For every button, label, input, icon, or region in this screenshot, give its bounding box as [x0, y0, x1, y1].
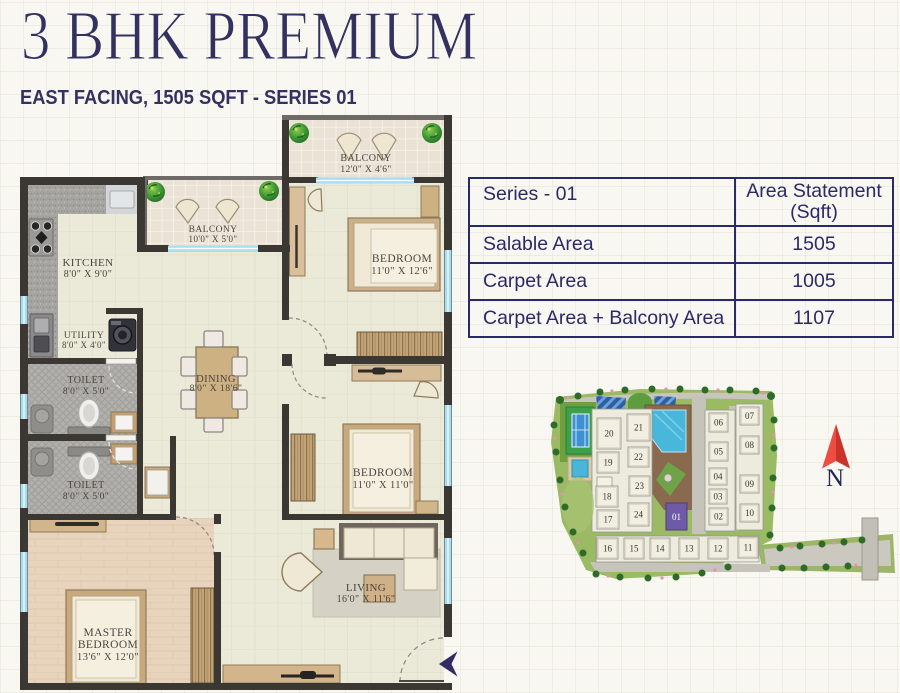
svg-text:21: 21 [634, 423, 643, 433]
svg-text:12'0" X 4'6": 12'0" X 4'6" [340, 165, 391, 175]
svg-text:N: N [826, 465, 844, 492]
svg-text:TOILET: TOILET [67, 375, 104, 386]
svg-text:16'0" X 11'6": 16'0" X 11'6" [337, 594, 396, 605]
svg-text:04: 04 [714, 472, 724, 482]
svg-text:16: 16 [603, 544, 613, 554]
svg-text:17: 17 [604, 515, 614, 525]
svg-text:06: 06 [714, 418, 724, 428]
svg-text:24: 24 [634, 510, 644, 520]
svg-text:10: 10 [745, 508, 755, 518]
svg-text:8'0" X 5'0": 8'0" X 5'0" [63, 492, 109, 502]
svg-text:8'0" X 9'0": 8'0" X 9'0" [64, 269, 112, 280]
svg-text:15: 15 [630, 544, 640, 554]
svg-text:KITCHEN: KITCHEN [62, 257, 113, 269]
svg-text:BEDROOM: BEDROOM [372, 253, 432, 265]
svg-text:02: 02 [714, 512, 723, 522]
svg-text:13'6" X 12'0": 13'6" X 12'0" [77, 652, 139, 663]
svg-text:08: 08 [745, 440, 755, 450]
svg-text:TOILET: TOILET [67, 480, 104, 491]
svg-text:LIVING: LIVING [346, 582, 386, 594]
svg-text:BEDROOM: BEDROOM [78, 639, 138, 651]
svg-text:BEDROOM: BEDROOM [353, 467, 413, 479]
svg-text:11'0" X 11'0": 11'0" X 11'0" [352, 480, 413, 491]
svg-text:13: 13 [685, 544, 695, 554]
svg-text:09: 09 [745, 479, 755, 489]
svg-text:11: 11 [744, 543, 753, 553]
svg-text:07: 07 [745, 411, 755, 421]
svg-text:14: 14 [656, 544, 666, 554]
svg-text:03: 03 [714, 492, 724, 502]
svg-text:12: 12 [714, 544, 723, 554]
svg-text:19: 19 [604, 458, 614, 468]
svg-text:BALCONY: BALCONY [340, 153, 391, 164]
svg-text:23: 23 [635, 481, 645, 491]
svg-text:8'0" X 18'6": 8'0" X 18'6" [190, 383, 243, 394]
svg-text:20: 20 [605, 429, 615, 439]
svg-text:10'0" X 5'0": 10'0" X 5'0" [189, 234, 238, 244]
svg-text:11'0" X 12'6": 11'0" X 12'6" [371, 266, 433, 277]
svg-text:22: 22 [634, 452, 643, 462]
svg-text:8'0" X 4'0": 8'0" X 4'0" [62, 340, 106, 350]
svg-text:MASTER: MASTER [83, 627, 132, 639]
svg-text:01: 01 [672, 512, 681, 522]
svg-text:8'0" X 5'0": 8'0" X 5'0" [63, 387, 109, 397]
svg-text:18: 18 [603, 492, 613, 502]
svg-text:05: 05 [714, 447, 724, 457]
